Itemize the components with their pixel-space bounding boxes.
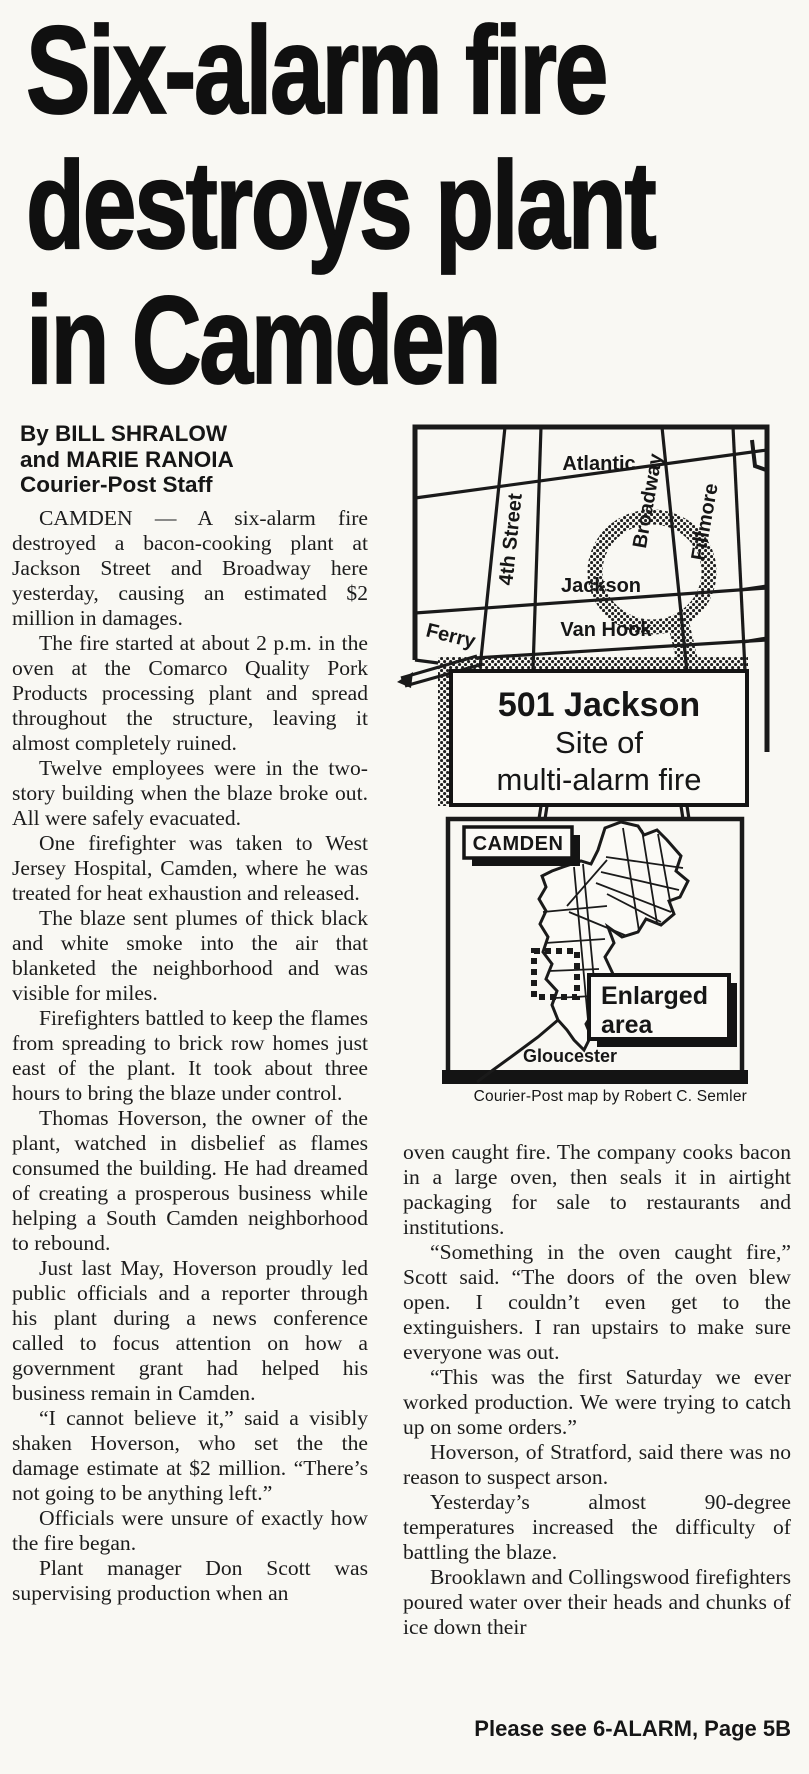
street-label-van-hook: Van Hook [560,619,652,641]
fire-location-pointer [667,617,698,662]
paragraph: Hoverson, of Stratford, said there was n… [403,1440,791,1490]
byline: By BILL SHRALOW and MARIE RANOIA Courier… [20,421,234,498]
paragraph: Brooklawn and Collingswood firefighters … [403,1565,791,1640]
headline-line-3: in Camden [26,274,790,409]
locator-map: CAMDEN Enlarged area Gloucester [442,819,748,1084]
camden-label: CAMDEN [473,833,564,855]
callout-line-2: Site of [555,725,643,760]
headline-line-1: Six-alarm fire [26,4,790,139]
paragraph: Thomas Hoverson, the owner of the plant,… [12,1106,368,1256]
paragraph: Firefighters battled to keep the flames … [12,1006,368,1106]
street-label-4th-street: 4th Street [495,492,527,586]
map-credit: Courier-Post map by Robert C. Semler [474,1088,747,1105]
headline-line-2: destroys plant [26,139,790,274]
paragraph: Twelve employees were in the two-story b… [12,756,368,831]
newspaper-page: Six-alarm fire destroys plant in Camden … [0,0,809,1774]
paragraph: oven caught fire. The company cooks baco… [403,1140,791,1240]
callout-line-3: multi-alarm fire [497,762,702,797]
article-column-left: CAMDEN — A six-alarm fire destroyed a ba… [12,506,368,1606]
paragraph: The blaze sent plumes of thick black and… [12,906,368,1006]
callout-box: 501 Jackson Site of multi-alarm fire [451,671,747,805]
enlarged-area-label-1: Enlarged [601,982,708,1010]
paragraph: Just last May, Hoverson proudly led publ… [12,1256,368,1406]
paragraph: One firefighter was taken to West Jersey… [12,831,368,906]
article-column-right: oven caught fire. The company cooks baco… [403,1140,791,1640]
byline-author-1: By BILL SHRALOW [20,421,234,447]
paragraph: “This was the first Saturday we ever wor… [403,1365,791,1440]
paragraph: Plant manager Don Scott was supervising … [12,1556,368,1606]
paragraph: “I cannot believe it,” said a visibly sh… [12,1406,368,1506]
street-label-fillmore: Fillmore [688,482,723,562]
enlarged-area-label-2: area [601,1011,654,1039]
gloucester-label: Gloucester [523,1046,617,1066]
paragraph: CAMDEN — A six-alarm fire destroyed a ba… [12,506,368,631]
callout-address: 501 Jackson [498,686,700,724]
continuation-notice: Please see 6-ALARM, Page 5B [403,1716,791,1742]
callout-shadow-top [438,657,748,671]
byline-author-2: and MARIE RANOIA [20,447,234,473]
street-label-atlantic: Atlantic [562,453,635,475]
paragraph: The fire started at about 2 p.m. in the … [12,631,368,756]
paragraph: Yesterday’s almost 90-degree temperature… [403,1490,791,1565]
paragraph: Officials were unsure of exactly how the… [12,1506,368,1556]
street-map: Jackson Broadway Atlantic 4th Street Fil… [397,427,767,819]
map-figure: Jackson Broadway Atlantic 4th Street Fil… [395,420,805,1110]
enlarged-area-label-box: Enlarged area [589,975,737,1047]
street-map-corner-hook [752,440,766,470]
paragraph: “Something in the oven caught fire,” Sco… [403,1240,791,1365]
camden-label-box: CAMDEN [464,827,580,866]
street-label-ferry: Ferry [424,620,479,654]
byline-staff: Courier-Post Staff [20,472,234,498]
headline: Six-alarm fire destroys plant in Camden [26,4,790,409]
